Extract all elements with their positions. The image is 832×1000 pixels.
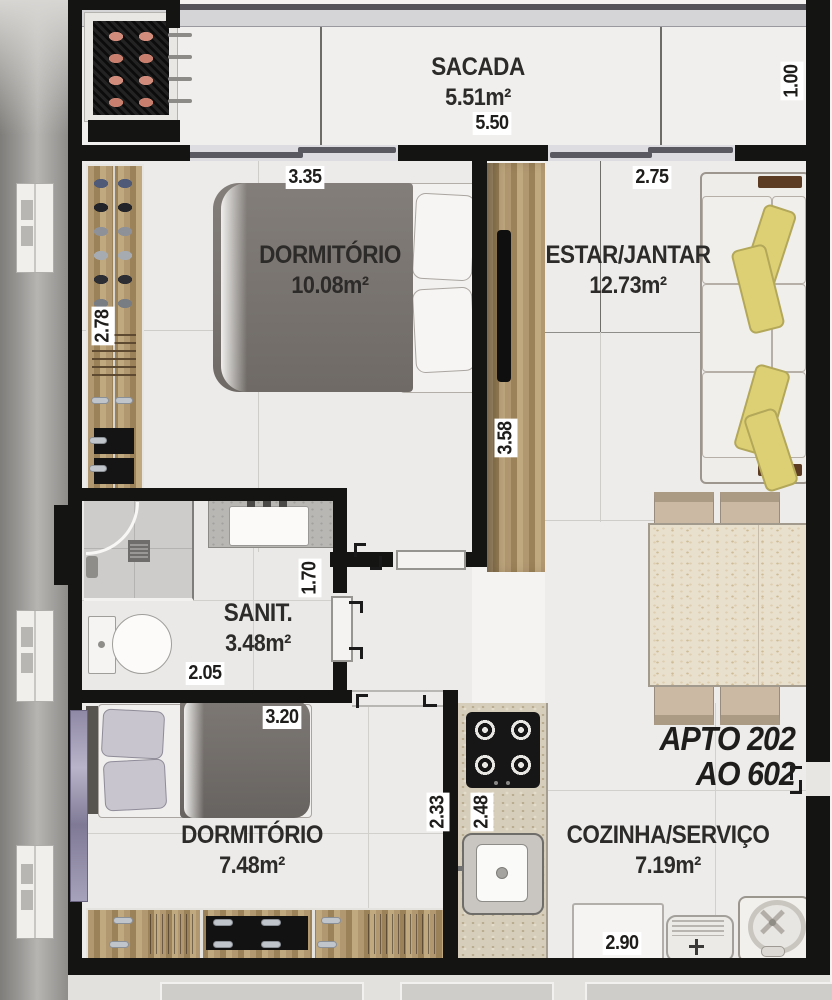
hanger-hook [92, 398, 108, 403]
cooktop-knob [494, 781, 498, 785]
panel [21, 200, 33, 220]
folded-clothes [89, 272, 137, 287]
wall-grill-corner [166, 0, 180, 28]
room-label-sanit: SANIT. 3.48m² [224, 598, 293, 658]
basket-ridges [672, 920, 724, 936]
seam [368, 703, 369, 912]
wall-grill-top [68, 0, 180, 10]
bed-pillow [412, 286, 476, 373]
wall-top-c [735, 145, 830, 161]
duvet-fold [221, 183, 247, 392]
room-name: SACADA [431, 52, 525, 83]
panel [21, 653, 33, 673]
sliding-door-panel [550, 152, 652, 158]
corridor-unit [16, 183, 54, 273]
divider [34, 184, 36, 272]
balcony-seam [320, 10, 322, 145]
dim-sanit-width: 2.05 [186, 662, 225, 685]
room-name: ESTAR/JANTAR [545, 240, 710, 271]
folded-clothes [89, 224, 137, 239]
hanger-hook [110, 942, 128, 947]
washing-machine [738, 896, 810, 962]
folded-clothes [89, 248, 137, 263]
apartment-title-line2: AO 602 [579, 757, 795, 792]
shower-drain [128, 540, 150, 562]
sofa-wood-trim [758, 176, 802, 188]
door-stop [370, 556, 382, 570]
vanity-counter [208, 498, 335, 548]
washer-hub [769, 919, 776, 926]
faucet [263, 501, 271, 507]
dim-tv-wall: 3.58 [495, 419, 518, 458]
room-name: COZINHA/SERVIÇO [567, 820, 770, 851]
room-area: 5.51m² [431, 83, 525, 112]
room-area: 7.48m² [181, 851, 323, 880]
room-label-dormitorio2: DORMITÓRIO 7.48m² [181, 820, 323, 880]
balcony-seam [660, 10, 662, 145]
skewer-handle [168, 55, 192, 59]
hanger-hook [114, 918, 132, 923]
door-leaf-dorm1 [396, 550, 466, 570]
dim-sacada-width: 5.50 [473, 112, 512, 135]
apartment-title: APTO 202 AO 602 [579, 722, 795, 792]
dim-dorm1-width: 3.35 [286, 166, 325, 189]
room-area: 7.19m² [567, 851, 770, 880]
divider [34, 611, 36, 701]
room-name: SANIT. [224, 598, 293, 629]
dining-table [648, 523, 812, 687]
hanger-hook [262, 942, 280, 947]
bed-pillow [412, 192, 476, 281]
window-curtain [70, 710, 88, 902]
meat-skewer [101, 29, 161, 44]
dim-cozinha-depth: 2.48 [471, 793, 494, 832]
dim-estar-width: 2.75 [633, 166, 672, 189]
barbecue-grill [84, 12, 178, 122]
door-stop [356, 694, 368, 708]
meat-skewer [101, 73, 161, 88]
wall-shaft [54, 505, 68, 585]
corridor-unit [16, 845, 54, 939]
hanger-hook [116, 398, 132, 403]
kitchen-sink [462, 833, 544, 915]
dim-sanit-depth: 1.70 [299, 559, 322, 598]
flush-button [98, 641, 105, 648]
corridor-unit [16, 610, 54, 702]
wall-hall-b [465, 552, 487, 567]
door-stop [423, 695, 437, 707]
folded-clothes [89, 176, 137, 191]
wall-bottom [68, 958, 830, 975]
panel [21, 627, 33, 647]
door-stop [349, 647, 363, 659]
skewer-handle [168, 99, 192, 103]
wall-top-a [68, 145, 190, 161]
hanger-hook [322, 918, 340, 923]
sliding-door-panel [298, 147, 396, 153]
tv [497, 230, 511, 382]
closet-divider [312, 910, 315, 958]
wall-opening-right [806, 760, 830, 798]
wall-sanit-right-a [333, 488, 347, 593]
panel [21, 864, 33, 884]
meat-skewer [101, 95, 161, 110]
skewer-handle [168, 77, 192, 81]
sink-drain [496, 867, 508, 879]
shower-head [86, 556, 98, 578]
sliding-door-panel [187, 152, 303, 158]
faucet [247, 501, 255, 507]
wall-dorm1-right [472, 161, 487, 552]
closet-divider [200, 910, 203, 958]
wall-grill-bottom [88, 120, 180, 142]
corridor-top-light [0, 0, 68, 135]
wall-sanit-top [68, 488, 347, 501]
toilet-bowl [112, 614, 172, 674]
duvet-fold [184, 700, 204, 818]
dim-dorm2-depth: 2.33 [427, 793, 450, 832]
dim-cozinha-width: 2.90 [603, 932, 642, 955]
faucet [279, 501, 287, 507]
door-stop [349, 601, 363, 613]
hall-floor [333, 552, 472, 703]
room-label-sacada: SACADA 5.51m² [431, 52, 525, 112]
meat-skewer [101, 51, 161, 66]
room-area: 3.48m² [224, 629, 293, 658]
bed-pillow [103, 758, 168, 811]
closet-rail-stripes [368, 914, 438, 954]
room-label-cozinha: COZINHA/SERVIÇO 7.19m² [567, 820, 770, 880]
bathroom-sink [229, 506, 309, 546]
neighbour-closet [400, 982, 554, 1000]
cooktop [466, 712, 540, 788]
apartment-title-line1: APTO 202 [579, 722, 795, 757]
shower-area [84, 500, 194, 601]
neighbour-closet [160, 982, 364, 1000]
seam [600, 332, 601, 522]
burner [508, 717, 534, 743]
balcony-glass [82, 10, 808, 27]
folded-clothes [89, 200, 137, 215]
burner [472, 752, 498, 778]
table-seam [758, 525, 759, 685]
hanger-hook [214, 920, 232, 925]
skewer-handle [168, 33, 192, 37]
room-label-dormitorio1: DORMITÓRIO 10.08m² [259, 240, 401, 300]
divider [34, 846, 36, 938]
room-area: 12.73m² [545, 271, 710, 300]
wall-sanit-right-b [333, 662, 347, 690]
floor-plan: SACADA 5.51m² DORMITÓRIO 10.08m² ESTAR/J… [0, 0, 832, 1000]
wardrobe-closet-2 [86, 908, 447, 960]
hanger-hook [318, 942, 336, 947]
laundry-basket [666, 915, 734, 962]
room-area: 10.08m² [259, 271, 401, 300]
hanger-hook [262, 920, 280, 925]
burner [472, 717, 498, 743]
dim-dorm2-width: 3.20 [263, 706, 302, 729]
room-label-estar: ESTAR/JANTAR 12.73m² [545, 240, 710, 300]
door-stop [354, 543, 366, 557]
cooktop-knob [506, 781, 510, 785]
panel [21, 226, 33, 246]
closet-dark-panel [94, 458, 134, 484]
sliding-door-panel [648, 147, 733, 153]
neighbour-closet [585, 982, 832, 1000]
washer-control [761, 946, 785, 957]
burner [508, 752, 534, 778]
wall-dorm2-top [68, 690, 352, 703]
hanger-hook [214, 942, 232, 947]
dim-closet-depth: 2.78 [92, 307, 115, 346]
dim-sacada-depth: 1.00 [781, 62, 804, 101]
hanger-hook [90, 466, 106, 471]
room-name: DORMITÓRIO [181, 820, 323, 851]
hanger-hook [90, 438, 106, 443]
bed-pillow [101, 708, 165, 759]
room-name: DORMITÓRIO [259, 240, 401, 271]
wall-top-b [398, 145, 548, 161]
basket-handle [689, 945, 704, 948]
panel [21, 890, 33, 910]
closet-rail-stripes [150, 914, 196, 954]
tv-panel [487, 163, 545, 572]
